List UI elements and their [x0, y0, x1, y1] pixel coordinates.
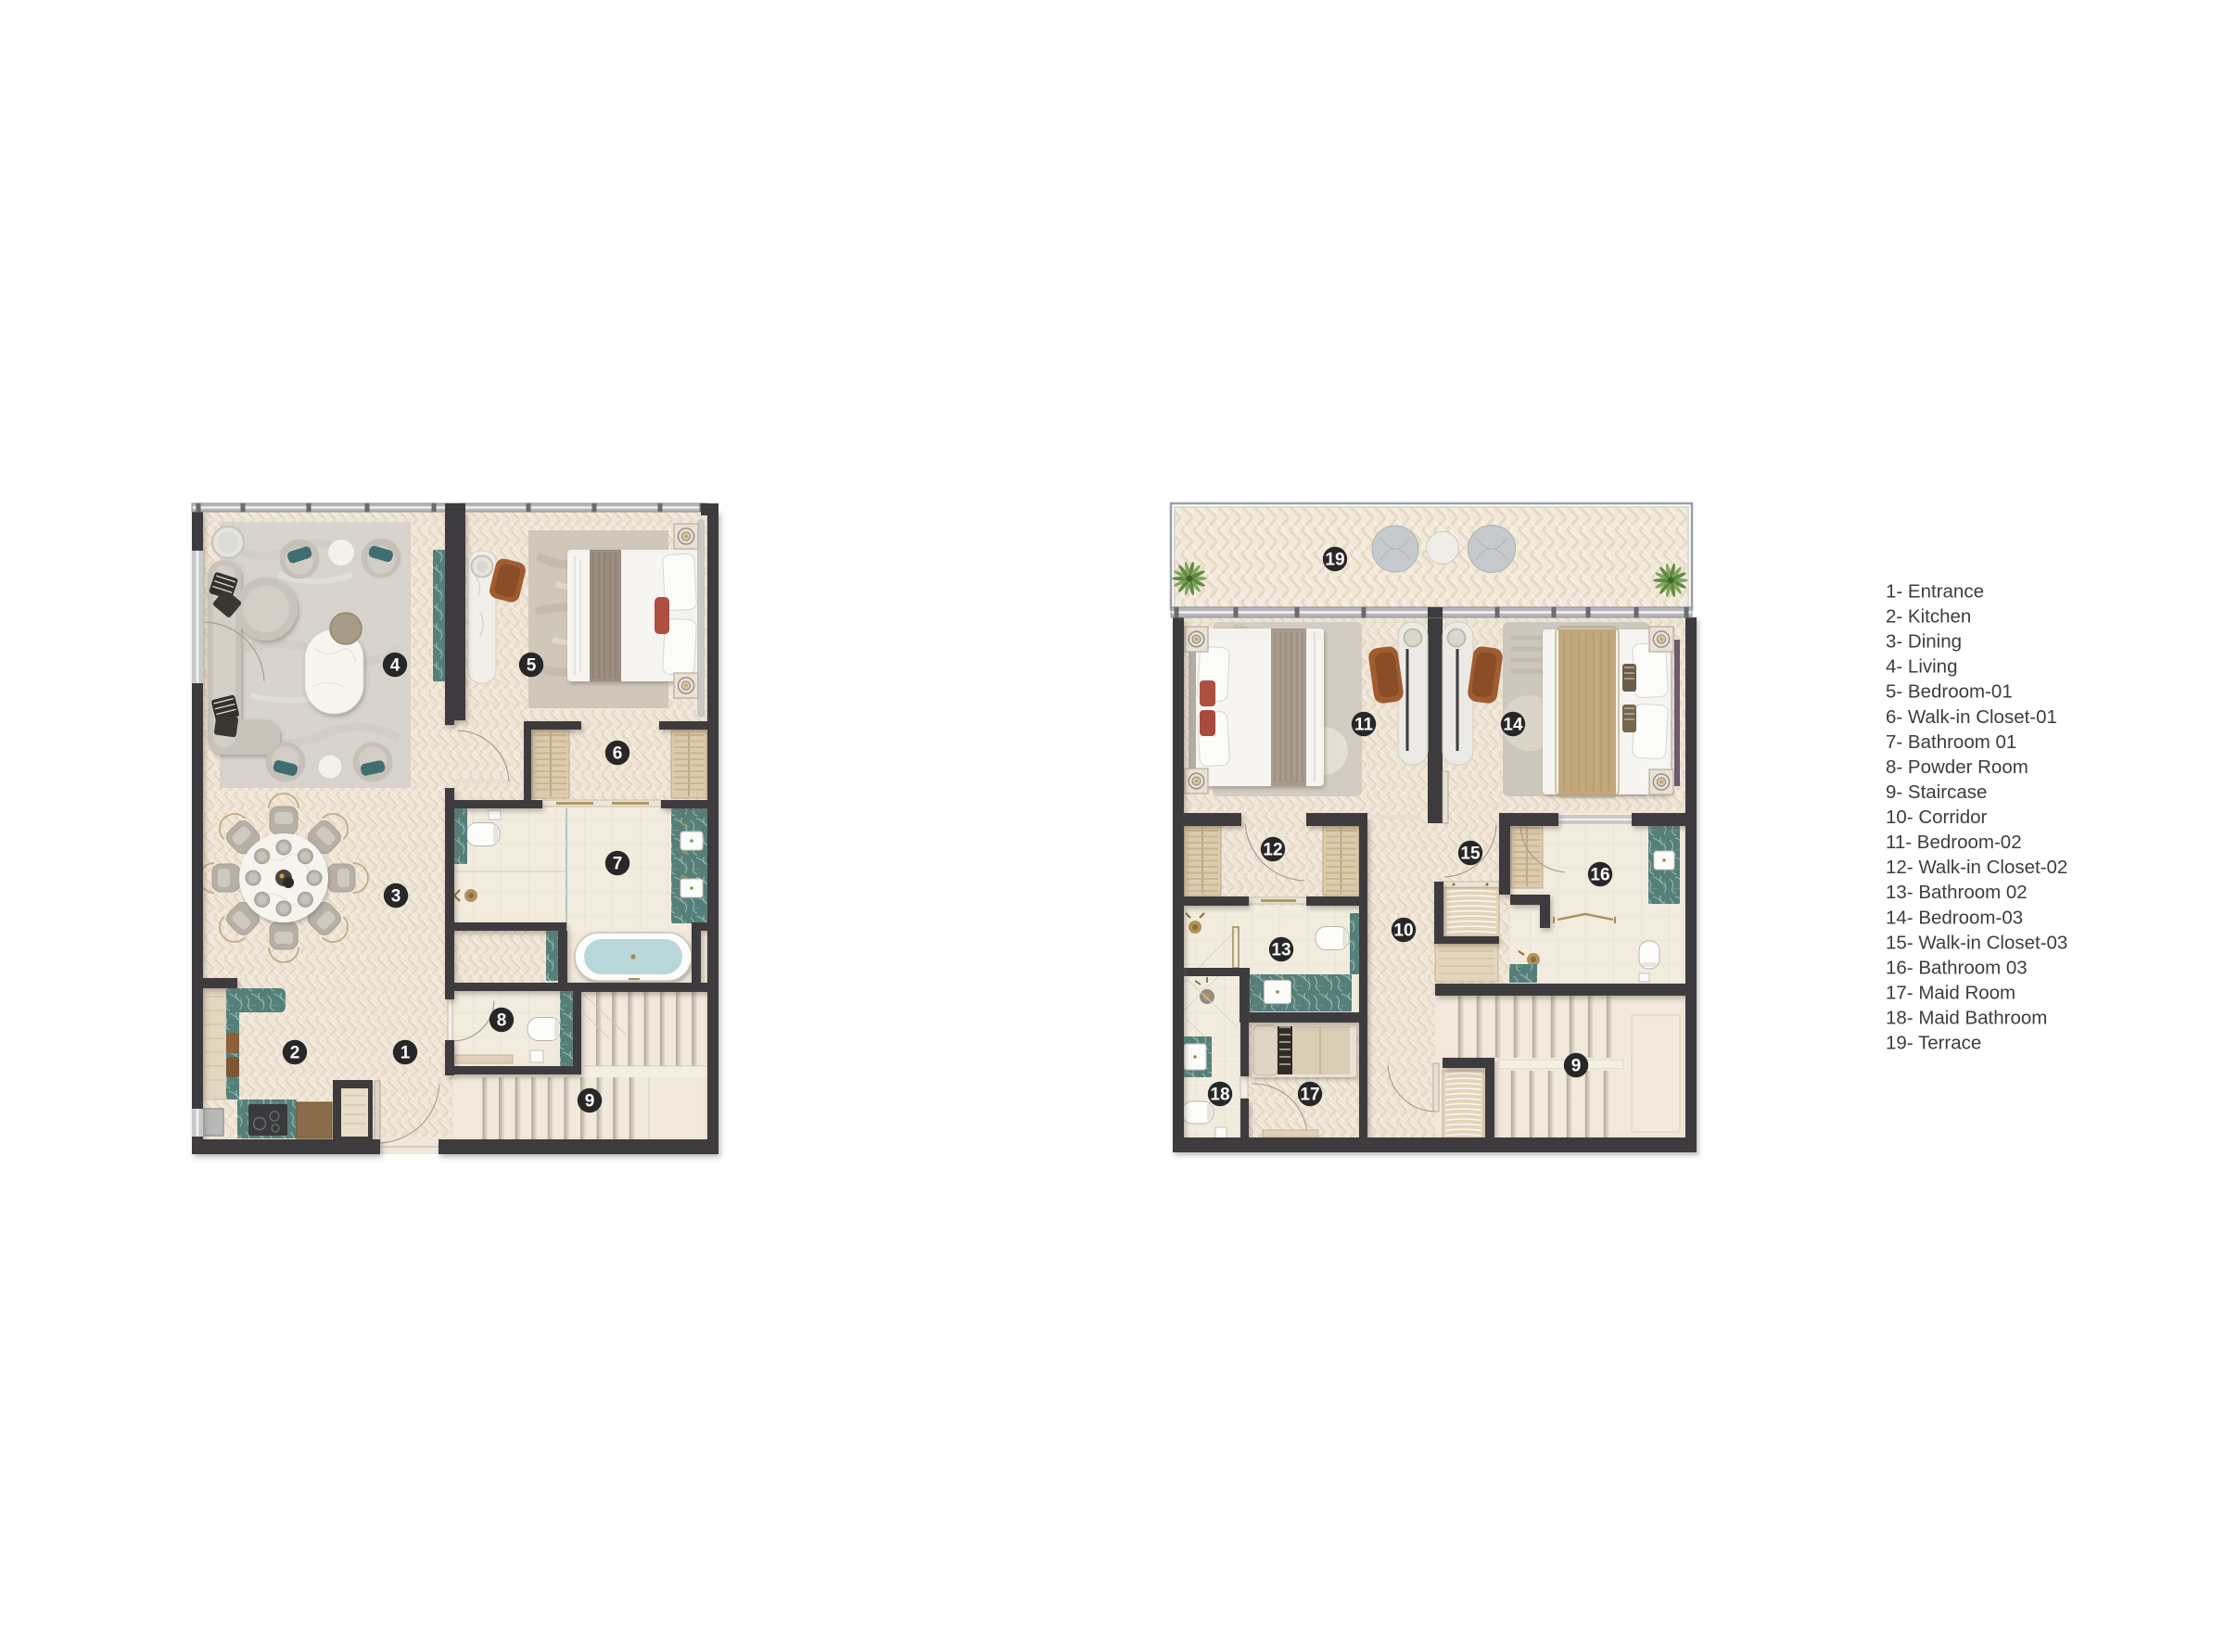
svg-text:14: 14: [1503, 716, 1523, 735]
svg-text:6: 6: [613, 744, 623, 764]
svg-text:9: 9: [1571, 1057, 1582, 1076]
svg-text:11: 11: [1354, 716, 1374, 735]
svg-text:18- Maid Bathroom: 18- Maid Bathroom: [1886, 1008, 2047, 1029]
svg-text:2- Kitchen: 2- Kitchen: [1886, 606, 1971, 628]
svg-text:18: 18: [1210, 1086, 1229, 1105]
svg-text:19- Terrace: 19- Terrace: [1886, 1033, 1981, 1054]
svg-text:14- Bedroom-03: 14- Bedroom-03: [1886, 907, 2023, 928]
svg-text:13: 13: [1271, 941, 1290, 960]
svg-text:9: 9: [585, 1092, 595, 1112]
svg-text:4: 4: [390, 656, 400, 676]
svg-text:4- Living: 4- Living: [1886, 656, 1958, 678]
svg-text:5- Bedroom-01: 5- Bedroom-01: [1886, 681, 2013, 703]
svg-text:9- Staircase: 9- Staircase: [1886, 782, 1987, 803]
svg-text:8- Powder Room: 8- Powder Room: [1886, 756, 2028, 778]
svg-text:12: 12: [1263, 841, 1282, 860]
svg-text:1: 1: [400, 1044, 411, 1063]
svg-text:7: 7: [613, 855, 623, 874]
svg-text:7- Bathroom 01: 7- Bathroom 01: [1886, 731, 2016, 753]
svg-text:15- Walk-in Closet-03: 15- Walk-in Closet-03: [1886, 932, 2067, 953]
svg-text:17- Maid Room: 17- Maid Room: [1886, 982, 2015, 1003]
svg-text:6- Walk-in Closet-01: 6- Walk-in Closet-01: [1886, 706, 2057, 728]
svg-text:1- Entrance: 1- Entrance: [1886, 581, 1984, 603]
svg-text:11- Bedroom-02: 11- Bedroom-02: [1886, 832, 2022, 853]
svg-text:12- Walk-in Closet-02: 12- Walk-in Closet-02: [1886, 857, 2067, 878]
svg-text:16: 16: [1590, 866, 1609, 885]
svg-text:16- Bathroom 03: 16- Bathroom 03: [1886, 957, 2028, 978]
svg-text:19: 19: [1325, 551, 1344, 570]
svg-text:13- Bathroom 02: 13- Bathroom 02: [1886, 882, 2028, 903]
svg-text:3: 3: [391, 887, 401, 907]
svg-text:15: 15: [1460, 845, 1481, 864]
svg-text:17: 17: [1300, 1086, 1319, 1105]
svg-text:5: 5: [527, 656, 537, 676]
svg-text:3- Dining: 3- Dining: [1886, 631, 1962, 653]
svg-text:10- Corridor: 10- Corridor: [1886, 807, 1988, 828]
svg-text:8: 8: [497, 1011, 507, 1031]
svg-text:2: 2: [290, 1044, 300, 1063]
svg-text:10: 10: [1393, 921, 1413, 941]
